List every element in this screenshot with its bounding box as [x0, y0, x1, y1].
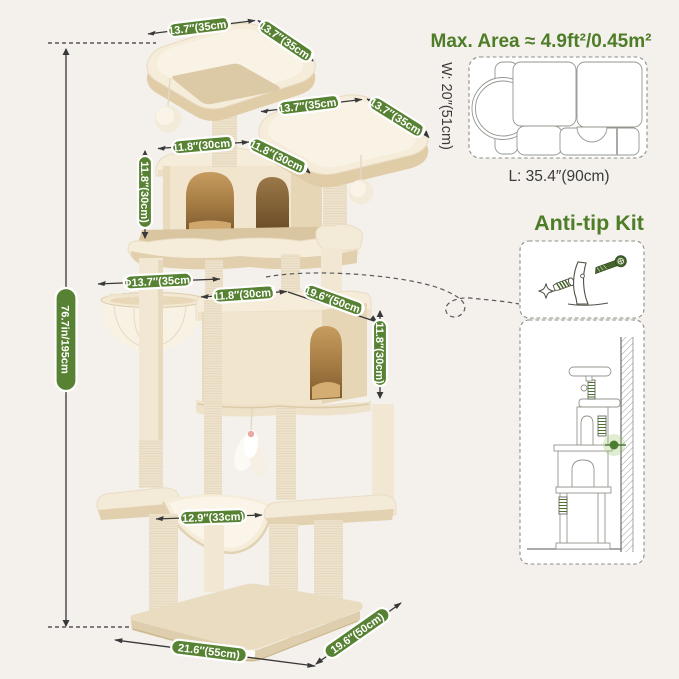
svg-text:11.8″(30cm): 11.8″(30cm) — [138, 161, 150, 223]
svg-text:Anti-tip Kit: Anti-tip Kit — [534, 211, 644, 235]
svg-text:11.8″(30cm): 11.8″(30cm) — [373, 322, 385, 384]
svg-text:12.9″(33cm): 12.9″(33cm) — [182, 511, 245, 525]
svg-text:76.7in/195cm: 76.7in/195cm — [59, 305, 71, 374]
svg-text:Max. Area ≈ 4.9ft²/0.45m²: Max. Area ≈ 4.9ft²/0.45m² — [431, 31, 652, 52]
svg-text:W: 20″(51cm): W: 20″(51cm) — [438, 62, 454, 150]
svg-text:L: 35.4″(90cm): L: 35.4″(90cm) — [508, 168, 609, 185]
